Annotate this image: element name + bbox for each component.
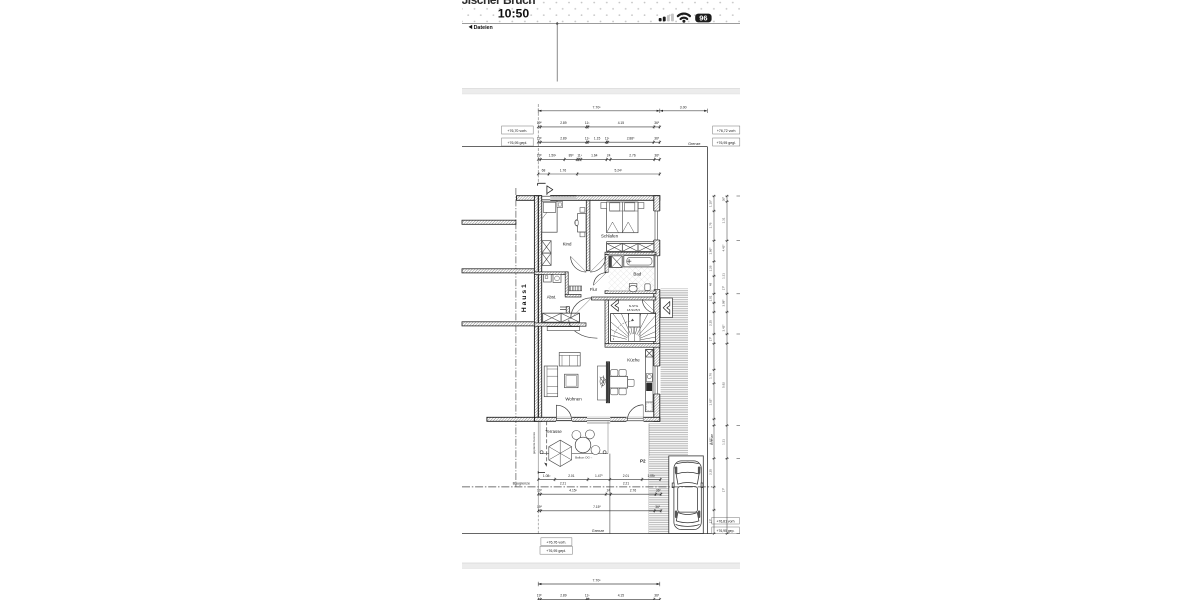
svg-text:1.76: 1.76 — [709, 373, 713, 379]
svg-text:Küche: Küche — [627, 357, 640, 362]
svg-text:1.05²: 1.05² — [647, 474, 655, 478]
svg-text:2.25: 2.25 — [709, 320, 713, 326]
svg-text:1.62⁵: 1.62⁵ — [709, 398, 713, 406]
svg-text:36⁵: 36⁵ — [654, 154, 660, 158]
svg-text:1.82⁵: 1.82⁵ — [709, 437, 713, 445]
svg-text:24: 24 — [607, 489, 611, 493]
svg-text:2.89: 2.89 — [560, 137, 567, 141]
svg-text:1.15: 1.15 — [594, 137, 601, 141]
svg-text:36⁵: 36⁵ — [654, 137, 660, 141]
svg-text:10:50: 10:50 — [498, 7, 530, 21]
svg-text:5.92: 5.92 — [722, 382, 726, 388]
svg-text:1.01: 1.01 — [709, 295, 713, 301]
svg-text:+76,95 gepl.: +76,95 gepl. — [507, 141, 527, 145]
svg-text:17⁵: 17⁵ — [722, 487, 726, 492]
svg-text:1.31: 1.31 — [722, 217, 726, 223]
svg-text:4.15²: 4.15² — [569, 489, 577, 493]
svg-text:30⁵: 30⁵ — [722, 196, 726, 201]
svg-text:36⁵: 36⁵ — [654, 594, 660, 598]
svg-text:24: 24 — [607, 154, 611, 158]
svg-text:Balkon OG→: Balkon OG→ — [575, 456, 593, 460]
svg-text:1.31: 1.31 — [722, 439, 726, 445]
svg-text:2.21: 2.21 — [560, 482, 566, 486]
svg-text:2.01: 2.01 — [568, 474, 575, 478]
svg-text:17⁵: 17⁵ — [722, 285, 726, 290]
svg-text:1.86⁵: 1.86⁵ — [709, 247, 713, 255]
svg-text:4.43⁵: 4.43⁵ — [722, 244, 726, 252]
svg-text:+76,95 gep.: +76,95 gep. — [716, 529, 734, 533]
svg-text:68: 68 — [542, 168, 546, 172]
svg-text:19⁵: 19⁵ — [537, 505, 543, 509]
svg-text:17⁵: 17⁵ — [709, 336, 713, 341]
svg-text:4.15: 4.15 — [618, 594, 625, 598]
svg-text:19⁵: 19⁵ — [537, 594, 543, 598]
svg-text:2.01: 2.01 — [623, 474, 630, 478]
svg-text:36⁵: 36⁵ — [654, 121, 660, 125]
svg-text:19⁵: 19⁵ — [537, 489, 543, 493]
svg-text:Bad: Bad — [633, 272, 641, 277]
svg-text:3.08⁵: 3.08⁵ — [722, 299, 726, 307]
svg-text:3.00: 3.00 — [680, 106, 687, 110]
svg-text:19⁵: 19⁵ — [537, 121, 543, 125]
svg-text:+76,76 vorh.: +76,76 vorh. — [546, 541, 566, 545]
svg-text:Abst.: Abst. — [547, 295, 557, 300]
svg-text:36⁵: 36⁵ — [656, 489, 662, 493]
svg-text:+76,95 gepl.: +76,95 gepl. — [546, 549, 566, 553]
svg-text:Flur: Flur — [590, 287, 598, 292]
svg-text:1.76: 1.76 — [709, 222, 713, 228]
svg-text:3.42⁵: 3.42⁵ — [722, 324, 726, 332]
svg-text:7.70²: 7.70² — [593, 578, 602, 582]
svg-text:P2: P2 — [640, 459, 646, 464]
svg-text:Dateien: Dateien — [474, 25, 493, 31]
svg-text:1.08²: 1.08² — [543, 474, 551, 478]
svg-text:Schlafen: Schlafen — [601, 234, 619, 239]
svg-text:Kind: Kind — [563, 241, 572, 246]
svg-text:+76,81 vorh: +76,81 vorh — [716, 519, 734, 523]
svg-text:96: 96 — [699, 14, 707, 23]
svg-text:4.15: 4.15 — [618, 121, 625, 125]
svg-text:19⁵: 19⁵ — [537, 137, 543, 141]
svg-text:2.25: 2.25 — [709, 469, 713, 475]
svg-text:1.10⁵: 1.10⁵ — [709, 199, 713, 207]
svg-text:36⁵: 36⁵ — [655, 505, 661, 509]
svg-text:+76,95 gegl.: +76,95 gegl. — [717, 141, 736, 145]
svg-text:19⁵: 19⁵ — [537, 154, 543, 158]
svg-text:1.76: 1.76 — [560, 168, 567, 172]
svg-text:49: 49 — [709, 283, 713, 287]
svg-text:5.24⁴: 5.24⁴ — [614, 168, 622, 172]
svg-text:1.47⁵: 1.47⁵ — [595, 474, 603, 478]
svg-text:1.31: 1.31 — [722, 273, 726, 279]
svg-text:+76,70 vorh.: +76,70 vorh. — [507, 129, 527, 133]
svg-text:1.64: 1.64 — [591, 154, 598, 158]
svg-text:+76,72 vorh: +76,72 vorh — [717, 129, 736, 133]
svg-text:2.76: 2.76 — [630, 489, 637, 493]
svg-text:1.50²: 1.50² — [549, 154, 557, 158]
svg-text:Wohnen: Wohnen — [565, 397, 582, 402]
svg-text:7.15⁵: 7.15⁵ — [593, 505, 601, 509]
svg-text:2.89: 2.89 — [560, 121, 567, 125]
svg-text:Grenze: Grenze — [592, 529, 604, 533]
svg-text:18.S/25,5: 18.S/25,5 — [627, 308, 641, 312]
svg-text:17⁵: 17⁵ — [709, 518, 713, 523]
svg-text:2.76: 2.76 — [629, 154, 636, 158]
svg-text:89⁵: 89⁵ — [569, 154, 575, 158]
svg-text:2.21: 2.21 — [623, 482, 629, 486]
svg-text:Baugrenze: Baugrenze — [513, 481, 530, 485]
svg-text:7.70²: 7.70² — [593, 106, 602, 110]
svg-text:2.89: 2.89 — [560, 594, 567, 598]
svg-text:Grenze: Grenze — [688, 142, 700, 146]
svg-text:geplante Grenze: geplante Grenze — [532, 432, 536, 455]
svg-text:Terrasse: Terrasse — [545, 429, 562, 434]
svg-text:H a u s 1: H a u s 1 — [521, 284, 528, 312]
svg-text:2.88⁵: 2.88⁵ — [627, 137, 635, 141]
svg-text:1.26: 1.26 — [709, 265, 713, 271]
